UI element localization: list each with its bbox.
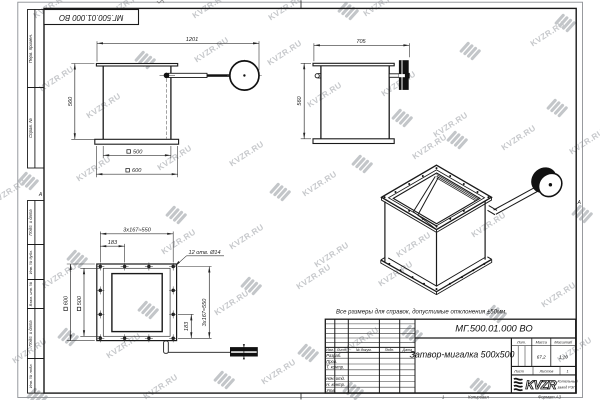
svg-text:500: 500 xyxy=(133,149,143,155)
svg-text:183: 183 xyxy=(108,240,118,246)
svg-text:KVZR.RU: KVZR.RU xyxy=(295,262,333,291)
svg-text:Взам. инв. №: Взам. инв. № xyxy=(28,281,33,306)
svg-text:Нач. отд.: Нач. отд. xyxy=(326,376,345,381)
svg-text:500: 500 xyxy=(77,295,83,305)
svg-text:KVZR.RU: KVZR.RU xyxy=(432,110,470,139)
svg-text:Разраб.: Разраб. xyxy=(326,353,341,358)
svg-text:67,2: 67,2 xyxy=(537,355,546,360)
svg-text:Лит.: Лит. xyxy=(516,341,526,345)
svg-text:KVZR.RU: KVZR.RU xyxy=(540,280,578,309)
svg-text:KVZR.RU: KVZR.RU xyxy=(191,0,229,20)
svg-text:Масштаб: Масштаб xyxy=(554,341,573,345)
svg-text:KVZR: KVZR xyxy=(526,378,557,392)
svg-text:KVZR.RU: KVZR.RU xyxy=(75,154,113,183)
svg-text:KVZR.RU: KVZR.RU xyxy=(213,288,251,317)
svg-text:KVZR.RU: KVZR.RU xyxy=(301,169,339,198)
svg-text:А: А xyxy=(38,192,43,198)
svg-text:1:10: 1:10 xyxy=(559,355,568,360)
svg-text:завод РЭП: завод РЭП xyxy=(557,386,577,390)
svg-text:560: 560 xyxy=(297,95,303,105)
svg-text:3х167≈550: 3х167≈550 xyxy=(123,227,152,233)
svg-text:Пров.: Пров. xyxy=(326,359,337,364)
svg-text:МГ.500.01.000 ВО: МГ.500.01.000 ВО xyxy=(455,323,533,334)
svg-text:Т. контр.: Т. контр. xyxy=(326,365,344,370)
svg-text:KVZR.RU: KVZR.RU xyxy=(313,240,351,269)
svg-text:Лист: Лист xyxy=(513,370,524,374)
svg-text:Н. контр.: Н. контр. xyxy=(326,382,345,387)
svg-text:KVZR.RU: KVZR.RU xyxy=(362,0,400,18)
svg-text:Котельный: Котельный xyxy=(558,380,578,384)
svg-text:600: 600 xyxy=(132,168,142,174)
svg-text:KVZR.RU: KVZR.RU xyxy=(228,222,266,251)
svg-text:№ докум.: № докум. xyxy=(356,348,372,352)
svg-text:Инв. № дубл.: Инв. № дубл. xyxy=(28,250,33,275)
svg-text:Подп.: Подп. xyxy=(385,348,395,352)
svg-text:KVZR.RU: KVZR.RU xyxy=(395,230,433,259)
svg-text:12 отв. Ø14: 12 отв. Ø14 xyxy=(189,250,221,256)
svg-text:Листов: Листов xyxy=(539,370,554,374)
svg-text:Подп. и дата: Подп. и дата xyxy=(28,209,33,236)
svg-text:KVZR.RU: KVZR.RU xyxy=(500,123,538,152)
svg-text:600: 600 xyxy=(63,295,69,305)
svg-text:Затвор-мигалка 500х500: Затвор-мигалка 500х500 xyxy=(410,350,515,360)
svg-text:А: А xyxy=(577,200,582,206)
svg-text:Лист: Лист xyxy=(336,348,346,352)
svg-text:3х167≈550: 3х167≈550 xyxy=(202,298,208,327)
svg-text:Справ. №: Справ. № xyxy=(28,118,33,138)
svg-text:Копировал: Копировал xyxy=(468,394,489,399)
svg-text:Утв.: Утв. xyxy=(326,388,336,393)
svg-text:Изм.: Изм. xyxy=(326,348,334,352)
svg-text:Все размеры для справок, допус: Все размеры для справок, допустимые откл… xyxy=(336,310,507,316)
svg-text:705: 705 xyxy=(356,39,366,45)
svg-text:KVZR.RU: KVZR.RU xyxy=(306,80,344,109)
svg-text:1: 1 xyxy=(566,370,568,374)
svg-text:МГ.500.01.000 ВО: МГ.500.01.000 ВО xyxy=(59,13,123,22)
svg-text:1: 1 xyxy=(442,394,444,399)
svg-text:KVZR.RU: KVZR.RU xyxy=(193,35,231,64)
svg-text:KVZR.RU: KVZR.RU xyxy=(266,38,304,67)
svg-text:KVZR.RU: KVZR.RU xyxy=(267,0,305,22)
svg-text:KVZR.RU: KVZR.RU xyxy=(228,139,266,168)
svg-text:KVZR.RU: KVZR.RU xyxy=(568,127,600,156)
svg-text:KVZR.RU: KVZR.RU xyxy=(260,357,298,386)
svg-text:KVZR.RU: KVZR.RU xyxy=(470,210,508,239)
svg-text:KVZR.RU: KVZR.RU xyxy=(411,132,449,161)
svg-text:183: 183 xyxy=(184,321,190,331)
svg-text:Перв. примен.: Перв. примен. xyxy=(28,34,33,63)
svg-text:1201: 1201 xyxy=(186,37,198,43)
svg-text:KVZR.RU: KVZR.RU xyxy=(142,372,180,400)
svg-text:Подп. и дата: Подп. и дата xyxy=(28,320,33,347)
svg-text:KVZR.RU: KVZR.RU xyxy=(41,261,79,290)
svg-text:KVZR.RU: KVZR.RU xyxy=(156,143,194,172)
svg-text:Формат А3: Формат А3 xyxy=(538,394,562,399)
svg-text:Инв. № подл.: Инв. № подл. xyxy=(28,363,33,388)
svg-text:KVZR.RU: KVZR.RU xyxy=(105,331,143,360)
svg-text:Масса: Масса xyxy=(536,341,547,345)
svg-text:560: 560 xyxy=(68,96,74,106)
